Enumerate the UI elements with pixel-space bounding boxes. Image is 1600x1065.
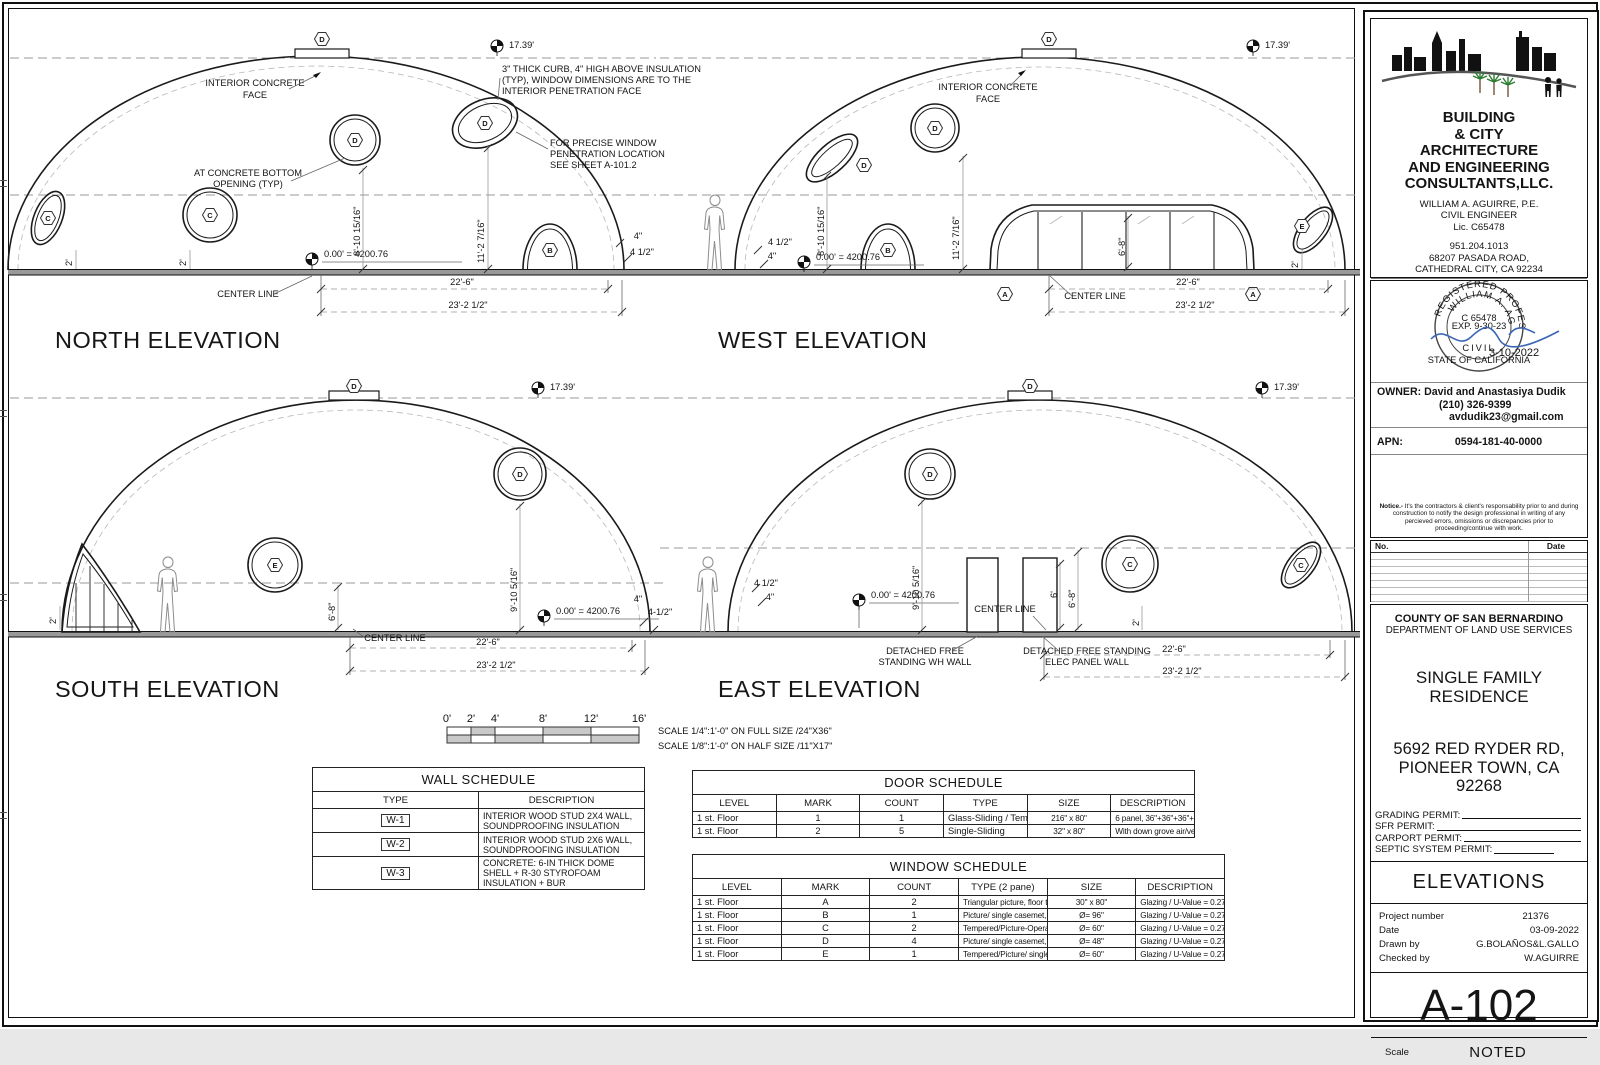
svg-text:C: C (1127, 560, 1133, 569)
dim-23-2: 23'-2 1/2" (448, 300, 487, 310)
svg-text:0.00' = 4200.76: 0.00' = 4200.76 (871, 590, 935, 600)
svg-text:ELEC PANEL WALL: ELEC PANEL WALL (1045, 657, 1129, 667)
table-row: 1 st. Floor C 2 Tempered/Picture-Operabl… (693, 922, 1225, 935)
table-row: 1 st. Floor B 1 Picture/ single casemet,… (693, 909, 1225, 922)
wall-schedule-title: WALL SCHEDULE (313, 768, 645, 792)
datum-benchmark: 0.00' = 4200.76 (853, 590, 959, 628)
svg-text:FOR PRECISE WINDOW: FOR PRECISE WINDOW (550, 138, 657, 148)
window-schedule-table: WINDOW SCHEDULE LEVEL MARK COUNT TYPE (2… (692, 854, 1225, 961)
svg-text:DETACHED FREE STANDING: DETACHED FREE STANDING (1023, 646, 1151, 656)
col-mark: MARK (776, 795, 860, 812)
city-skyline-icon (1392, 31, 1556, 71)
note-elec-wall: DETACHED FREE STANDING ELEC PANEL WALL (1023, 636, 1151, 667)
datum-benchmark: 0.00' = 4200.76 (538, 606, 659, 626)
window-c-edge: C (25, 187, 72, 249)
revision-no-header: No. (1375, 541, 1389, 552)
apn-row: APN: 0594-181-40-0000 (1371, 428, 1587, 455)
svg-text:D: D (932, 124, 938, 133)
table-row: W-1 INTERIOR WOOD STUD 2X4 WALL, SOUNDPR… (313, 809, 645, 833)
dim-9-10: 9'-10 5/16" (509, 568, 519, 612)
window-d: D (330, 115, 380, 165)
svg-text:0': 0' (443, 713, 451, 725)
people-icon (1545, 77, 1562, 97)
door-schedule-table: DOOR SCHEDULE LEVEL MARK COUNT TYPE SIZE… (692, 770, 1195, 838)
registration-mark (0, 180, 7, 187)
north-elevation-title: NORTH ELEVATION (55, 327, 281, 354)
cell-mark: B (781, 909, 870, 922)
scale-row: Scale NOTED (1371, 1037, 1587, 1065)
marker-letter: B (547, 246, 553, 255)
table-row: 1 st. Floor E 1 Tempered/Picture/ single… (693, 948, 1225, 961)
wall-desc-cell: CONCRETE: 6-IN THICK DOME SHELL + R-30 S… (479, 857, 645, 890)
table-row: 1 st. Floor 1 1 Glass-Sliding / Tempered… (693, 812, 1195, 825)
dim-6-8: 6'-8" (327, 602, 337, 621)
dim-23-2: 23'-2 1/2" (1175, 300, 1214, 310)
svg-text:2': 2' (467, 713, 475, 725)
table-row: W-2 INTERIOR WOOD STUD 2X6 WALL, SOUNDPR… (313, 833, 645, 857)
table-row: W-3 CONCRETE: 6-IN THICK DOME SHELL + R-… (313, 857, 645, 890)
marker-d-skylight: D (1042, 33, 1057, 46)
east-elevation-drawing: D D C C 17.39' 0.00' = 4200.76 (658, 378, 1360, 688)
revision-date-header: Date (1547, 541, 1565, 552)
cell-type: Single-Sliding (943, 825, 1027, 838)
dome-insulation-line (18, 66, 614, 270)
window-d-oblique: D (445, 88, 526, 158)
apn-value: 0594-181-40-0000 (1455, 436, 1542, 448)
cell-count: 5 (860, 825, 944, 838)
owner-email: avdudik23@gmail.com (1377, 411, 1581, 424)
permit-row: SFR PERMIT: (1371, 821, 1587, 833)
svg-text:E: E (1299, 222, 1304, 231)
cell-size: Ø= 48" (1047, 935, 1136, 948)
window-c: C (1102, 536, 1158, 592)
ground-line (8, 270, 658, 276)
col-description: DESCRIPTION (1111, 795, 1195, 812)
scale-tick-labels: 0' 2' 4' 8' 12' 16' (443, 713, 646, 725)
dome-outline (735, 57, 1345, 270)
revision-table: No. Date (1370, 540, 1588, 602)
cell-mark: C (781, 922, 870, 935)
firm-address-line1: 68207 PASADA ROAD, (1371, 253, 1587, 265)
table-title-row: DOOR SCHEDULE (693, 771, 1195, 795)
apex-benchmark: 17.39' (1247, 40, 1290, 56)
permit-row: CARPORT PERMIT: (1371, 833, 1587, 845)
title-block: BUILDING & CITY ARCHITECTURE AND ENGINEE… (1363, 10, 1599, 1022)
svg-text:STANDING WH WALL: STANDING WH WALL (879, 657, 972, 667)
cell-level: 1 st. Floor (693, 948, 782, 961)
stamp-owner-box: REGISTERED PROFESSIONAL ENGINEER WILLIAM… (1370, 280, 1588, 538)
cell-mark: E (781, 948, 870, 961)
marker-letter: C (207, 211, 213, 220)
svg-text:FACE: FACE (243, 90, 267, 100)
cell-description: Glazing / U-Value = 0.27 / SHGC = 0.35 (1136, 948, 1225, 961)
wall-type-cell: W-3 (313, 857, 479, 890)
dim-22-6: 22'-6" (476, 637, 500, 647)
datum-benchmark: 0.00' = 4200.76 (306, 249, 462, 269)
marker-a: A (1246, 288, 1261, 301)
col-description: DESCRIPTION (479, 792, 645, 809)
cell-size: 32" x 80" (1027, 825, 1111, 838)
engineer-name: WILLIAM A. AGUIRRE, P.E. (1371, 199, 1587, 211)
note-penetration: FOR PRECISE WINDOW PENETRATION LOCATION … (516, 132, 665, 170)
drawing-sheet-a102: { "titles": {"north":"NORTH ELEVATION","… (0, 0, 1600, 1029)
owner-phone: (210) 326-9399 (1377, 399, 1581, 412)
dim-6-8: 6'-8" (1067, 589, 1077, 608)
apn-label: APN: (1377, 436, 1403, 448)
south-elevation-drawing: D E D 17.39' 0.00' = 4200.76 (8, 378, 678, 688)
svg-text:DETACHED FREE: DETACHED FREE (886, 646, 964, 656)
cell-count: 1 (870, 909, 959, 922)
owner-label: OWNER: (1377, 386, 1421, 398)
window-schedule-title: WINDOW SCHEDULE (693, 855, 1225, 879)
west-elevation-title: WEST ELEVATION (718, 327, 927, 354)
dim-23-2: 23'-2 1/2" (476, 660, 515, 670)
cell-count: 4 (870, 935, 959, 948)
firm-logo (1376, 23, 1582, 103)
dim-23-2: 23'-2 1/2" (1162, 666, 1201, 676)
stamp-expiration: EXP. 9-30-23 (1452, 321, 1507, 331)
project-address: 5692 RED RYDER RD, PIONEER TOWN, CA 9226… (1371, 740, 1587, 796)
table-header-row: LEVEL MARK COUNT TYPE SIZE DESCRIPTION (693, 795, 1195, 812)
dim-4in: 4" (634, 594, 642, 604)
cell-count: 1 (860, 812, 944, 825)
dim-4half: 4 1/2" (754, 578, 778, 588)
marker-d-skylight: D (315, 33, 330, 46)
col-mark: MARK (781, 879, 870, 896)
reference-dashed-lines (10, 398, 668, 583)
sheet-number: A-102 (1371, 972, 1587, 1037)
dim-2ft: 2' (1131, 619, 1141, 626)
note-interior-concrete-face: INTERIOR CONCRETE FACE (938, 70, 1037, 104)
window-a-triangular (62, 544, 140, 632)
ground-line (658, 270, 1360, 276)
cell-count: 1 (870, 948, 959, 961)
center-line-label: CENTER LINE (217, 289, 278, 299)
agency-dept: DEPARTMENT OF LAND USE SERVICES (1371, 625, 1587, 636)
note-wh-wall: DETACHED FREE STANDING WH WALL (879, 636, 978, 667)
table-row: 1 st. Floor A 2 Triangular picture, floo… (693, 896, 1225, 909)
apex-benchmark: 17.39' (532, 382, 575, 398)
dim-4in: 4" (634, 231, 642, 241)
cell-size: Ø= 60" (1047, 922, 1136, 935)
window-d-oblique (799, 126, 865, 190)
dim-4in: 4" (766, 592, 774, 602)
marker-a: A (998, 288, 1013, 301)
cell-type: Glass-Sliding / Tempered (943, 812, 1027, 825)
cell-level: 1 st. Floor (693, 825, 777, 838)
apex-elevation-text: 17.39' (509, 40, 534, 50)
svg-text:D: D (351, 382, 357, 391)
scale-note-full: SCALE 1/4":1'-0" ON FULL SIZE /24"X36" (658, 726, 832, 736)
window-c: C (183, 188, 237, 242)
dim-22-6: 22'-6" (450, 277, 474, 287)
ground-line (658, 632, 1360, 638)
marker-letter: D (482, 119, 488, 128)
col-size: SIZE (1027, 795, 1111, 812)
svg-text:PENETRATION LOCATION: PENETRATION LOCATION (550, 149, 665, 159)
cell-level: 1 st. Floor (693, 922, 782, 935)
cell-level: 1 st. Floor (693, 909, 782, 922)
permit-row: SEPTIC SYSTEM PERMIT: (1371, 844, 1587, 856)
apex-benchmark: 17.39' (1256, 382, 1299, 398)
cell-description: Glazing / U-Value = 0.27 / SHGC = 0.35 (1136, 896, 1225, 909)
dim-4half: 4 1/2" (768, 237, 792, 247)
col-type: TYPE (2 pane) (958, 879, 1047, 896)
table-header-row: LEVEL MARK COUNT TYPE (2 pane) SIZE DESC… (693, 879, 1225, 896)
wh-wall (967, 558, 998, 632)
human-figure (705, 195, 725, 270)
cell-mark: 2 (776, 825, 860, 838)
col-count: COUNT (860, 795, 944, 812)
cell-size: 216" x 80" (1027, 812, 1111, 825)
registration-mark (0, 410, 7, 417)
reference-dashed-lines (660, 58, 1356, 195)
center-line-label: CENTER LINE (364, 633, 425, 643)
svg-text:A: A (1002, 290, 1008, 299)
scale-bar-blocks (447, 727, 639, 743)
cell-mark: 1 (776, 812, 860, 825)
revision-empty-rows (1371, 553, 1587, 602)
dim-4half: 4 1/2" (630, 247, 654, 257)
cell-description: With down grove air/vent, bathroom & bed… (1111, 825, 1195, 838)
sheet-info-rows: Project number21376 Date03-09-2022 Drawn… (1371, 903, 1587, 972)
wall-type-cell: W-1 (313, 809, 479, 833)
west-elevation-drawing: D D D B A A E 17.39' 0.00' = 4 (658, 28, 1360, 336)
dim-2ft: 2' (64, 259, 74, 266)
window-c-edge: C (1274, 536, 1328, 595)
south-elevation-title: SOUTH ELEVATION (55, 676, 280, 703)
human-figure (698, 557, 718, 632)
svg-text:D: D (927, 470, 933, 479)
svg-text:D: D (517, 470, 523, 479)
owner-block: OWNER: David and Anastasiya Dudik (210) … (1371, 382, 1587, 428)
skylight-curb (1022, 49, 1076, 58)
table-title-row: WALL SCHEDULE (313, 768, 645, 792)
svg-text:17.39': 17.39' (1265, 40, 1290, 50)
window-e: E (248, 538, 302, 592)
svg-text:D: D (861, 161, 867, 170)
marker-letter: C (45, 214, 51, 223)
cell-size: Ø= 96" (1047, 909, 1136, 922)
dim-2ft: 2' (48, 617, 58, 624)
cell-type: Tempered/Picture-Operable/ single caseme… (958, 922, 1047, 935)
project-type: SINGLE FAMILY RESIDENCE (1371, 668, 1587, 706)
marker-letter: D (352, 136, 358, 145)
pe-stamp: REGISTERED PROFESSIONAL ENGINEER WILLIAM… (1371, 281, 1587, 373)
marker-d-skylight: D (1023, 380, 1038, 393)
dim-4in: 4" (768, 251, 776, 261)
table-header-row: TYPE DESCRIPTION (313, 792, 645, 809)
center-line-label: CENTER LINE (1064, 291, 1125, 301)
cell-type: Triangular picture, floor to ceiling, vi… (958, 896, 1047, 909)
cell-description: Glazing / U-Value = 0.27 / SHGC = 0.35 (1136, 935, 1225, 948)
svg-text:17.39': 17.39' (550, 382, 575, 392)
cell-mark: D (781, 935, 870, 948)
svg-text:0.00' = 4200.76: 0.00' = 4200.76 (556, 606, 620, 616)
svg-text:C: C (1298, 561, 1304, 570)
col-size: SIZE (1047, 879, 1136, 896)
dim-2ft: 2' (1290, 261, 1300, 268)
wall-desc-cell: INTERIOR WOOD STUD 2X6 WALL, SOUNDPROOFI… (479, 833, 645, 857)
col-level: LEVEL (693, 795, 777, 812)
revision-col-divider (1528, 541, 1529, 601)
svg-text:AT CONCRETE BOTTOM: AT CONCRETE BOTTOM (194, 168, 302, 178)
cell-description: Glazing / U-Value = 0.27 / SHGC = 0.35 (1136, 922, 1225, 935)
note-bottom-opening: AT CONCRETE BOTTOM OPENING (TYP) (194, 158, 345, 189)
svg-text:D: D (1046, 35, 1052, 44)
project-info-box: COUNTY OF SAN BERNARDINO DEPARTMENT OF L… (1370, 604, 1588, 1018)
firm-name-line2: & CITY (1371, 127, 1587, 144)
cell-level: 1 st. Floor (693, 812, 777, 825)
marker-d: D (857, 159, 872, 172)
registration-mark (0, 594, 7, 601)
cell-description: 6 panel, 36"+36"+36"+36"+36"+36" (1111, 812, 1195, 825)
reference-dashed-lines (660, 398, 1356, 548)
center-line-label: CENTER LINE (974, 604, 1035, 614)
drawn-by-row: Drawn byG.BOLAÑOS&L.GALLO (1371, 938, 1587, 952)
svg-text:D: D (1027, 382, 1033, 391)
svg-text:E: E (272, 561, 277, 570)
engineer-license: Lic. C65478 (1371, 222, 1587, 234)
apex-benchmark: 17.39' (491, 40, 534, 56)
owner-name: David and Anastasiya Dudik (1424, 386, 1566, 398)
dim-2ft: 2' (178, 259, 188, 266)
engineer-role: CIVIL ENGINEER (1371, 210, 1587, 222)
svg-text:A: A (1250, 290, 1256, 299)
dome-insulation-line (72, 410, 640, 632)
table-row: 1 st. Floor 2 5 Single-Sliding 32" x 80"… (693, 825, 1195, 838)
cell-count: 2 (870, 922, 959, 935)
col-description: DESCRIPTION (1136, 879, 1225, 896)
scale-value: NOTED (1409, 1044, 1587, 1061)
date-row: Date03-09-2022 (1371, 924, 1587, 938)
dimension-lines (60, 502, 658, 675)
skylight-curb (295, 49, 349, 58)
svg-text:12': 12' (584, 713, 598, 725)
north-elevation-drawing: D C C D D B 17.39' 0.00' = 4200.76 (8, 28, 658, 336)
notice-text: Notice.- It's the contractors & client's… (1379, 503, 1579, 533)
revision-header: No. Date (1371, 541, 1587, 553)
firm-name-line4: AND ENGINEERING (1371, 160, 1587, 177)
window-d: D (911, 104, 959, 152)
dim-8-10: 8'-10 15/16" (352, 206, 362, 256)
cell-type: Tempered/Picture/ single casemet, vinyl (958, 948, 1047, 961)
col-type: TYPE (313, 792, 479, 809)
dim-6ft: 6' (1049, 591, 1059, 598)
col-level: LEVEL (693, 879, 782, 896)
table-title-row: WINDOW SCHEDULE (693, 855, 1225, 879)
cell-level: 1 st. Floor (693, 896, 782, 909)
svg-text:4': 4' (491, 713, 499, 725)
marker-e: E (1295, 220, 1310, 233)
wall-desc-cell: INTERIOR WOOD STUD 2X4 WALL, SOUNDPROOFI… (479, 809, 645, 833)
dim-22-6: 22'-6" (1176, 277, 1200, 287)
door-schedule-title: DOOR SCHEDULE (693, 771, 1195, 795)
cell-size: Ø= 60" (1047, 948, 1136, 961)
sheet-title: ELEVATIONS (1371, 861, 1587, 903)
east-elevation-title: EAST ELEVATION (718, 676, 921, 703)
cell-type: Picture/ single casemet, vinyl (958, 909, 1047, 922)
firm-name-line3: ARCHITECTURE (1371, 143, 1587, 160)
permit-list: GRADING PERMIT: SFR PERMIT: CARPORT PERM… (1371, 810, 1587, 856)
human-figure (158, 557, 178, 632)
cell-mark: A (781, 896, 870, 909)
cell-size: 30" x 80" (1047, 896, 1136, 909)
cell-type: Picture/ single casemet, vinyl (958, 935, 1047, 948)
wall-schedule-table: WALL SCHEDULE TYPE DESCRIPTION W-1 INTER… (312, 767, 645, 890)
dim-11-2: 11'-2 7/16" (951, 216, 961, 260)
cell-level: 1 st. Floor (693, 935, 782, 948)
svg-text:17.39': 17.39' (1274, 382, 1299, 392)
dim-11-2: 11'-2 7/16" (476, 219, 486, 263)
graphic-scale-bar: 0' 2' 4' 8' 12' 16' SCALE 1/4":1'-0" ON … (440, 710, 870, 758)
permit-row: GRADING PERMIT: (1371, 810, 1587, 822)
stamp-date: 3-10-2022 (1489, 347, 1539, 359)
dim-22-6: 22'-6" (1162, 644, 1186, 654)
firm-info-box: BUILDING & CITY ARCHITECTURE AND ENGINEE… (1370, 18, 1588, 278)
svg-text:INTERIOR CONCRETE: INTERIOR CONCRETE (938, 82, 1037, 92)
svg-text:16': 16' (632, 713, 646, 725)
dome-outline (62, 400, 650, 632)
agency-name: COUNTY OF SAN BERNARDINO (1371, 613, 1587, 625)
col-type: TYPE (943, 795, 1027, 812)
door-b-arch: B (523, 224, 577, 270)
marker-letter: D (319, 35, 325, 44)
scale-note-half: SCALE 1/8":1'-0" ON HALF SIZE /11"X17" (658, 741, 832, 751)
marker-d-skylight: D (347, 380, 362, 393)
firm-name-line1: BUILDING (1371, 110, 1587, 127)
cell-description: Glazing / U-Value = 0.27 / SHGC = 0.35 (1136, 909, 1225, 922)
svg-text:OPENING (TYP): OPENING (TYP) (213, 179, 283, 189)
svg-text:B: B (885, 246, 891, 255)
window-d: D (494, 448, 546, 500)
firm-name-line5: CONSULTANTS,LLC. (1371, 176, 1587, 193)
scale-label: Scale (1385, 1047, 1409, 1058)
svg-text:SEE SHEET A-101.2: SEE SHEET A-101.2 (550, 160, 637, 170)
registration-mark (0, 812, 7, 819)
checked-by-row: Checked byW.AGUIRRE (1371, 952, 1587, 966)
firm-address-line2: CATHEDRAL CITY, CA 92234 (1371, 264, 1587, 276)
door-b-arch: B (861, 224, 915, 270)
window-d: D (905, 449, 955, 499)
table-row: 1 st. Floor D 4 Picture/ single casemet,… (693, 935, 1225, 948)
dim-9-10: 9'-10 5/16" (911, 566, 921, 610)
wall-type-cell: W-2 (313, 833, 479, 857)
svg-text:INTERIOR PENETRATION FACE: INTERIOR PENETRATION FACE (502, 86, 641, 96)
col-count: COUNT (870, 879, 959, 896)
project-number-row: Project number21376 (1371, 910, 1587, 924)
dim-8-10: 8'-10 15/16" (816, 206, 826, 256)
dim-6-8: 6'-8" (1117, 237, 1127, 256)
svg-text:8': 8' (539, 713, 547, 725)
svg-text:INTERIOR CONCRETE: INTERIOR CONCRETE (205, 78, 304, 88)
cell-count: 2 (870, 896, 959, 909)
firm-phone: 951.204.1013 (1371, 241, 1587, 253)
svg-text:FACE: FACE (976, 94, 1000, 104)
